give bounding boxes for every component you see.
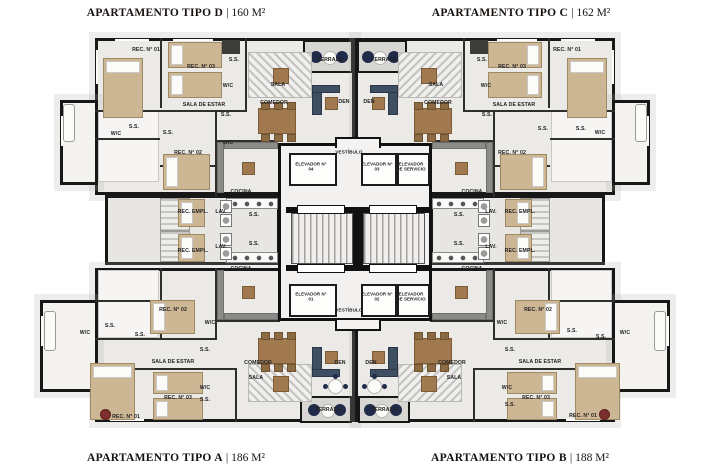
wall [95, 338, 217, 340]
dining-table [414, 338, 452, 364]
terrace-chair [362, 51, 374, 63]
dining-chair [440, 134, 449, 142]
kitchen-counter [224, 313, 278, 320]
handrail [369, 264, 417, 273]
dining-chair [261, 134, 270, 142]
coffee-table [273, 68, 289, 84]
den-sofa [370, 85, 398, 93]
bed [153, 372, 203, 394]
kitchen-counter [217, 142, 224, 193]
dining-chair [287, 134, 296, 142]
patio-chair [382, 384, 387, 389]
wall [550, 138, 615, 140]
staff-bed [178, 234, 205, 262]
service-elevator [397, 153, 430, 186]
kitchen-table [242, 162, 255, 175]
window [173, 39, 213, 41]
washer [220, 200, 232, 213]
bed [153, 398, 203, 420]
patio-table [328, 379, 343, 394]
bathtub [654, 311, 666, 351]
apartment-b-name: APARTAMENTO TIPO B [431, 452, 567, 464]
bed [488, 42, 542, 68]
vestibule-lobby [335, 137, 381, 148]
plant [100, 409, 111, 420]
dining-chair [427, 364, 436, 372]
coffee-table [421, 376, 437, 392]
dining-chair [261, 364, 270, 372]
elevator-01 [289, 284, 337, 317]
dining-chair [414, 102, 423, 110]
dining-chair [287, 364, 296, 372]
washer [220, 247, 232, 260]
kitchen-counter [432, 313, 486, 320]
staff-bed [178, 199, 205, 227]
apartment-d-title: APARTAMENTO TIPO D|160 M² [87, 7, 266, 19]
kitchen-counter [486, 270, 493, 320]
terrace-table [323, 51, 337, 65]
dark-closet [222, 40, 240, 54]
dining-chair [287, 332, 296, 340]
dining-chair [287, 102, 296, 110]
dining-chair [427, 134, 436, 142]
terrace-table [373, 51, 387, 65]
bed [168, 42, 222, 68]
bed [500, 154, 547, 190]
wall [245, 38, 247, 110]
title-separator: | [571, 7, 573, 19]
wall [160, 38, 162, 108]
apartment-a-name: APARTAMENTO TIPO A [87, 452, 223, 464]
apartment-b-area: 188 M² [575, 452, 609, 464]
window [41, 316, 43, 346]
bed [567, 58, 607, 118]
den-table [325, 351, 338, 364]
bed [507, 398, 557, 420]
handrail [369, 205, 417, 214]
wall [463, 38, 465, 110]
dining-table [258, 108, 296, 134]
bed [515, 300, 560, 334]
dining-chair [414, 332, 423, 340]
dark-closet [470, 40, 488, 54]
patio-chair [372, 374, 377, 379]
terrace-chair [336, 51, 348, 63]
vestibule-lobby [335, 320, 381, 331]
handrail [297, 205, 345, 214]
bath-cluster [551, 270, 612, 338]
apartment-d-name: APARTAMENTO TIPO D [87, 7, 223, 19]
dining-chair [440, 102, 449, 110]
patio-chair [362, 384, 367, 389]
kitchen-table [455, 286, 468, 299]
window [115, 39, 149, 41]
dining-chair [427, 102, 436, 110]
patio-chair [343, 384, 348, 389]
den-table [325, 97, 338, 110]
coffee-table [421, 68, 437, 84]
stove [226, 252, 278, 263]
staff-bed [505, 199, 532, 227]
apartment-c-name: APARTAMENTO TIPO C [432, 7, 568, 19]
apartment-a-area: 186 M² [231, 452, 265, 464]
wall [430, 320, 495, 322]
bed [103, 58, 143, 118]
kitchen-counter [486, 142, 493, 193]
dining-chair [274, 134, 283, 142]
dining-chair [440, 332, 449, 340]
dining-chair [274, 102, 283, 110]
kitchen-table [242, 286, 255, 299]
wall [95, 138, 160, 140]
terrace-table [321, 404, 335, 418]
dining-table [414, 108, 452, 134]
wall [493, 112, 495, 197]
title-separator: | [226, 7, 228, 19]
apartment-d-area: 160 M² [231, 7, 265, 19]
service-elevator [397, 284, 430, 317]
bed [488, 72, 542, 98]
kitchen-table [455, 162, 468, 175]
terrace-chair [308, 404, 320, 416]
bed [168, 72, 222, 98]
dining-chair [274, 332, 283, 340]
kitchen-counter [217, 270, 224, 320]
bed [90, 363, 135, 420]
wall [215, 320, 280, 322]
dining-chair [414, 134, 423, 142]
stove [226, 198, 278, 209]
bathtub [44, 311, 56, 351]
patio-chair [333, 374, 338, 379]
sofa-set [248, 52, 312, 98]
apartment-c-title: APARTAMENTO TIPO C|162 M² [432, 7, 611, 19]
dining-chair [261, 102, 270, 110]
elevator-04 [289, 153, 337, 186]
apartment-c-area: 162 M² [576, 7, 610, 19]
stove [432, 198, 484, 209]
den-table [372, 97, 385, 110]
wall [548, 38, 550, 108]
window [667, 316, 669, 346]
staff-bed [505, 234, 532, 262]
washer [220, 214, 232, 227]
terrace-chair [364, 404, 376, 416]
wall [473, 368, 475, 422]
stove [432, 252, 484, 263]
floor-plan-sheet: APARTAMENTO TIPO D|160 M² APARTAMENTO TI… [0, 0, 710, 473]
bed [163, 154, 210, 190]
patio-table [367, 379, 382, 394]
handrail [297, 264, 345, 273]
bath-cluster [98, 110, 159, 182]
window [96, 50, 98, 84]
wall [493, 268, 495, 340]
washer [478, 214, 490, 227]
window [561, 39, 595, 41]
den-table [372, 351, 385, 364]
dining-chair [440, 364, 449, 372]
plant [599, 409, 610, 420]
washer [478, 200, 490, 213]
elevator-02 [361, 284, 397, 317]
dining-chair [274, 364, 283, 372]
terrace-chair [390, 404, 402, 416]
title-separator: | [226, 452, 228, 464]
stair-wall [353, 207, 363, 271]
elevator-core [278, 143, 432, 321]
washer [220, 233, 232, 246]
elevator-03 [361, 153, 397, 186]
window [497, 39, 537, 41]
wall [493, 338, 615, 340]
terrace-chair [334, 404, 346, 416]
bed [575, 363, 620, 420]
washer [478, 233, 490, 246]
terrace-table [375, 404, 389, 418]
dining-chair [261, 332, 270, 340]
staircase [291, 213, 353, 264]
patio-chair [323, 384, 328, 389]
bed [507, 372, 557, 394]
dining-chair [414, 364, 423, 372]
den-sofa [312, 85, 340, 93]
apartment-b-title: APARTAMENTO TIPO B|188 M² [431, 452, 609, 464]
apartment-a-title: APARTAMENTO TIPO A|186 M² [87, 452, 265, 464]
window [647, 116, 649, 146]
wall [235, 368, 237, 422]
kitchen-counter [224, 142, 278, 149]
bed [150, 300, 195, 334]
kitchen-counter [432, 142, 486, 149]
dining-chair [427, 332, 436, 340]
title-separator: | [570, 452, 572, 464]
window [612, 50, 614, 84]
staircase [363, 213, 425, 264]
bathtub [63, 104, 75, 142]
bath-cluster [551, 110, 612, 182]
coffee-table [273, 376, 289, 392]
sofa-set [398, 52, 462, 98]
bathtub [635, 104, 647, 142]
washer [478, 247, 490, 260]
dining-table [258, 338, 296, 364]
